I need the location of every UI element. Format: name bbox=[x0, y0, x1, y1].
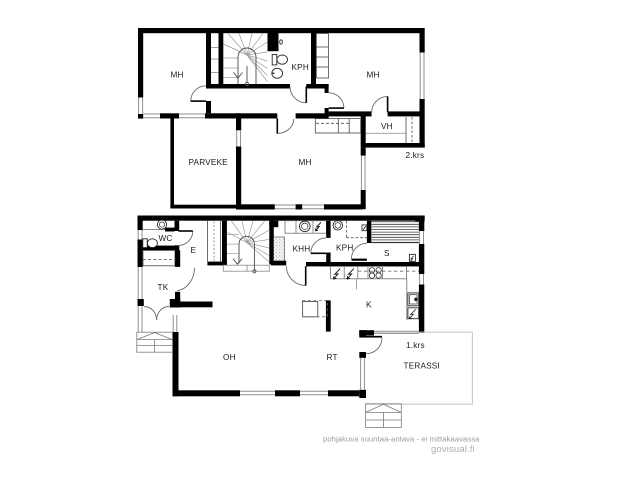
svg-text:KHH: KHH bbox=[293, 245, 311, 254]
svg-text:PARVEKE: PARVEKE bbox=[189, 158, 229, 167]
svg-text:VH: VH bbox=[381, 122, 393, 131]
svg-text:pohjakuva suuntaa-antava - ei: pohjakuva suuntaa-antava - ei mittakaava… bbox=[323, 435, 480, 444]
svg-text:E: E bbox=[191, 246, 197, 255]
svg-text:KPH: KPH bbox=[292, 63, 309, 72]
svg-text:MH: MH bbox=[299, 158, 312, 167]
svg-text:S: S bbox=[384, 249, 390, 258]
svg-text:TK: TK bbox=[158, 283, 169, 292]
svg-text:2.krs: 2.krs bbox=[406, 151, 425, 160]
svg-text:MH: MH bbox=[171, 71, 184, 80]
svg-text:KPH: KPH bbox=[336, 244, 353, 253]
svg-text:1.krs: 1.krs bbox=[406, 341, 425, 350]
svg-text:OH: OH bbox=[223, 353, 236, 362]
svg-text:govisual.fi: govisual.fi bbox=[431, 444, 475, 455]
svg-text:WC: WC bbox=[159, 234, 173, 243]
svg-text:RT: RT bbox=[327, 353, 338, 362]
svg-text:MH: MH bbox=[367, 71, 380, 80]
svg-text:K: K bbox=[366, 301, 372, 310]
svg-text:TERASSI: TERASSI bbox=[404, 362, 440, 371]
